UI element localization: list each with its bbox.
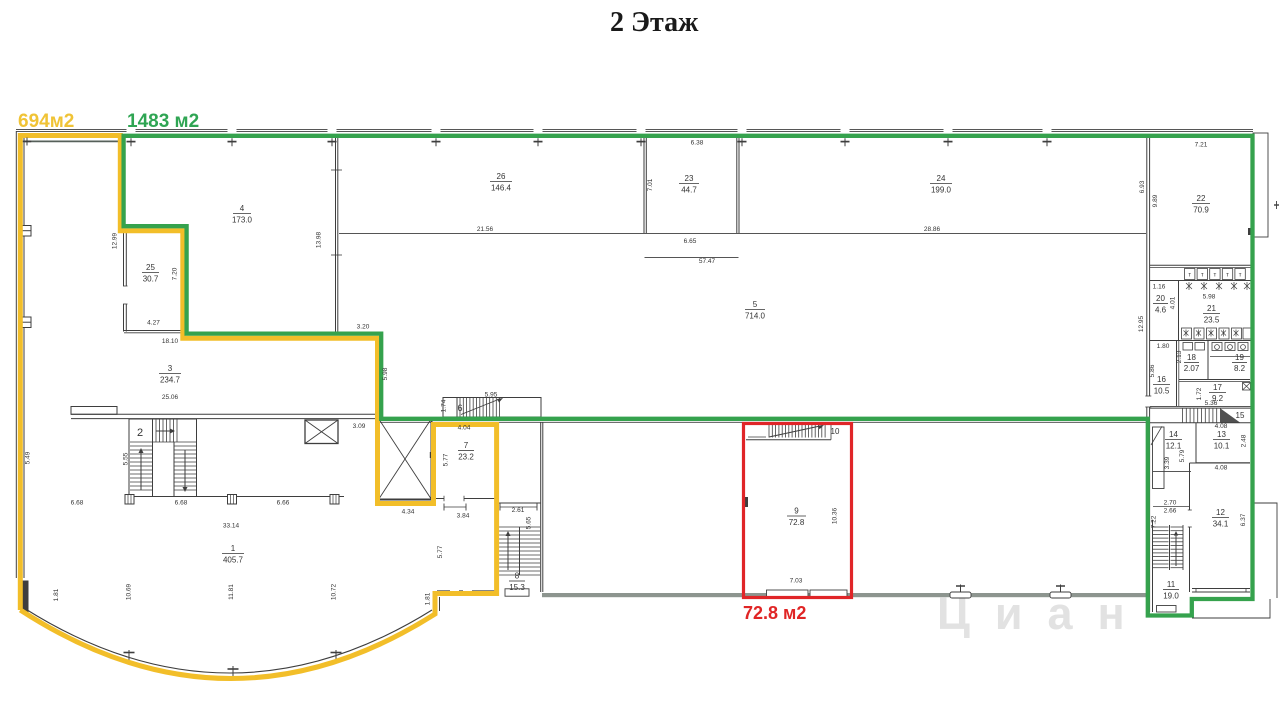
svg-text:5.86: 5.86 xyxy=(1149,364,1156,377)
svg-text:7: 7 xyxy=(464,441,469,450)
svg-text:146.4: 146.4 xyxy=(491,184,512,193)
svg-text:4.08: 4.08 xyxy=(1215,465,1228,472)
svg-text:4.27: 4.27 xyxy=(147,320,160,327)
svg-text:15.3: 15.3 xyxy=(509,583,525,592)
svg-text:14: 14 xyxy=(1169,430,1178,439)
svg-text:10.36: 10.36 xyxy=(832,507,839,524)
svg-text:44.7: 44.7 xyxy=(681,186,697,195)
svg-text:33.14: 33.14 xyxy=(223,523,240,530)
svg-text:234.7: 234.7 xyxy=(160,376,181,385)
svg-text:1483 м2: 1483 м2 xyxy=(127,111,199,132)
svg-text:5.79: 5.79 xyxy=(1179,449,1186,462)
svg-text:6.93: 6.93 xyxy=(1139,180,1146,193)
svg-text:199.0: 199.0 xyxy=(931,186,952,195)
svg-text:30.7: 30.7 xyxy=(143,275,159,284)
svg-text:3.09: 3.09 xyxy=(353,423,366,430)
svg-text:9.89: 9.89 xyxy=(1152,194,1159,207)
svg-text:19.0: 19.0 xyxy=(1163,592,1179,601)
svg-text:34.1: 34.1 xyxy=(1213,520,1229,529)
svg-text:12: 12 xyxy=(1216,508,1225,517)
svg-text:4: 4 xyxy=(240,204,245,213)
svg-text:28.86: 28.86 xyxy=(924,226,941,233)
svg-text:16: 16 xyxy=(1157,375,1166,384)
svg-text:т: т xyxy=(1226,273,1229,279)
svg-text:17: 17 xyxy=(1213,383,1222,392)
svg-text:18.10: 18.10 xyxy=(162,338,179,345)
svg-text:694м2: 694м2 xyxy=(18,111,74,132)
svg-text:2.07: 2.07 xyxy=(1184,364,1200,373)
svg-text:10.69: 10.69 xyxy=(126,583,133,600)
svg-text:173.0: 173.0 xyxy=(232,216,253,225)
svg-text:т: т xyxy=(1188,273,1191,279)
svg-text:7.03: 7.03 xyxy=(790,578,803,585)
svg-text:5.98: 5.98 xyxy=(382,367,389,380)
svg-text:18: 18 xyxy=(1187,353,1196,362)
svg-text:5.49: 5.49 xyxy=(25,451,32,464)
svg-text:23: 23 xyxy=(685,174,694,183)
svg-text:1.81: 1.81 xyxy=(53,588,60,601)
svg-text:11.81: 11.81 xyxy=(228,584,235,600)
svg-text:10.1: 10.1 xyxy=(1214,442,1230,451)
svg-text:2 Этаж: 2 Этаж xyxy=(610,7,699,38)
svg-text:3.84: 3.84 xyxy=(457,513,470,520)
svg-text:5.55: 5.55 xyxy=(123,452,130,465)
svg-text:5.95: 5.95 xyxy=(485,392,498,399)
svg-text:24: 24 xyxy=(937,174,946,183)
svg-text:4.04: 4.04 xyxy=(458,425,471,432)
svg-text:5.65: 5.65 xyxy=(526,516,533,529)
svg-text:4.34: 4.34 xyxy=(402,509,415,516)
svg-text:1.81: 1.81 xyxy=(425,592,432,605)
svg-text:4.6: 4.6 xyxy=(1155,306,1167,315)
svg-text:25: 25 xyxy=(146,263,155,272)
svg-text:8: 8 xyxy=(515,572,520,581)
svg-text:1: 1 xyxy=(231,544,236,553)
svg-text:11: 11 xyxy=(1167,580,1176,589)
svg-text:12.1: 12.1 xyxy=(1166,442,1182,451)
svg-text:12.99: 12.99 xyxy=(112,232,119,249)
svg-text:4.01: 4.01 xyxy=(1170,296,1177,309)
svg-text:5.98: 5.98 xyxy=(1203,294,1216,301)
svg-text:13: 13 xyxy=(1217,430,1226,439)
svg-text:57.47: 57.47 xyxy=(699,258,716,265)
svg-text:1.72: 1.72 xyxy=(1196,387,1203,400)
svg-text:1.80: 1.80 xyxy=(1157,343,1170,350)
svg-text:5.77: 5.77 xyxy=(443,453,450,466)
svg-text:9: 9 xyxy=(794,507,799,516)
svg-text:23.2: 23.2 xyxy=(458,453,474,462)
svg-text:т: т xyxy=(1239,273,1242,279)
svg-text:20: 20 xyxy=(1156,294,1165,303)
svg-text:7.22: 7.22 xyxy=(1151,515,1158,528)
svg-text:405.7: 405.7 xyxy=(223,556,244,565)
svg-text:10.72: 10.72 xyxy=(331,583,338,600)
svg-text:5.77: 5.77 xyxy=(437,545,444,558)
svg-text:6.65: 6.65 xyxy=(684,238,697,245)
svg-text:22: 22 xyxy=(1197,194,1206,203)
svg-text:3: 3 xyxy=(168,364,173,373)
svg-text:12.95: 12.95 xyxy=(1138,315,1145,332)
svg-text:1.16: 1.16 xyxy=(1153,284,1166,291)
svg-text:6.38: 6.38 xyxy=(691,140,704,147)
svg-text:70.9: 70.9 xyxy=(1193,206,1209,215)
svg-text:21: 21 xyxy=(1207,304,1216,313)
svg-text:2.70: 2.70 xyxy=(1164,500,1177,507)
svg-text:13.98: 13.98 xyxy=(316,231,323,248)
svg-text:2.48: 2.48 xyxy=(1241,434,1248,447)
svg-text:23.5: 23.5 xyxy=(1204,316,1220,325)
svg-text:7.20: 7.20 xyxy=(172,267,179,280)
svg-text:3.20: 3.20 xyxy=(357,324,370,331)
svg-text:6.37: 6.37 xyxy=(1240,513,1247,526)
svg-text:21.56: 21.56 xyxy=(477,226,494,233)
svg-text:3.39: 3.39 xyxy=(1164,456,1171,469)
svg-text:6.66: 6.66 xyxy=(277,500,290,507)
svg-text:714.0: 714.0 xyxy=(745,312,766,321)
svg-text:7.21: 7.21 xyxy=(1195,142,1208,149)
svg-text:25.06: 25.06 xyxy=(162,394,179,401)
svg-text:2.61: 2.61 xyxy=(512,507,525,514)
svg-text:6.68: 6.68 xyxy=(71,500,84,507)
svg-text:6: 6 xyxy=(457,403,462,413)
svg-text:19: 19 xyxy=(1235,353,1244,362)
svg-text:7.01: 7.01 xyxy=(647,178,654,191)
svg-text:5.36: 5.36 xyxy=(1205,400,1218,407)
svg-text:2: 2 xyxy=(137,427,143,439)
svg-text:26: 26 xyxy=(497,172,506,181)
svg-text:72.8 м2: 72.8 м2 xyxy=(743,603,806,623)
svg-text:8.2: 8.2 xyxy=(1234,364,1246,373)
svg-text:15: 15 xyxy=(1236,411,1245,420)
svg-text:10: 10 xyxy=(831,427,840,436)
svg-text:6.68: 6.68 xyxy=(175,500,188,507)
svg-text:1.74: 1.74 xyxy=(441,399,448,412)
svg-text:5: 5 xyxy=(753,300,758,309)
svg-text:72.8: 72.8 xyxy=(789,518,805,527)
svg-text:2.66: 2.66 xyxy=(1164,508,1177,515)
svg-text:2.13: 2.13 xyxy=(1176,350,1183,363)
svg-text:4.08: 4.08 xyxy=(1215,423,1228,430)
svg-text:т: т xyxy=(1214,273,1217,279)
svg-text:т: т xyxy=(1201,273,1204,279)
svg-text:10.5: 10.5 xyxy=(1154,387,1170,396)
